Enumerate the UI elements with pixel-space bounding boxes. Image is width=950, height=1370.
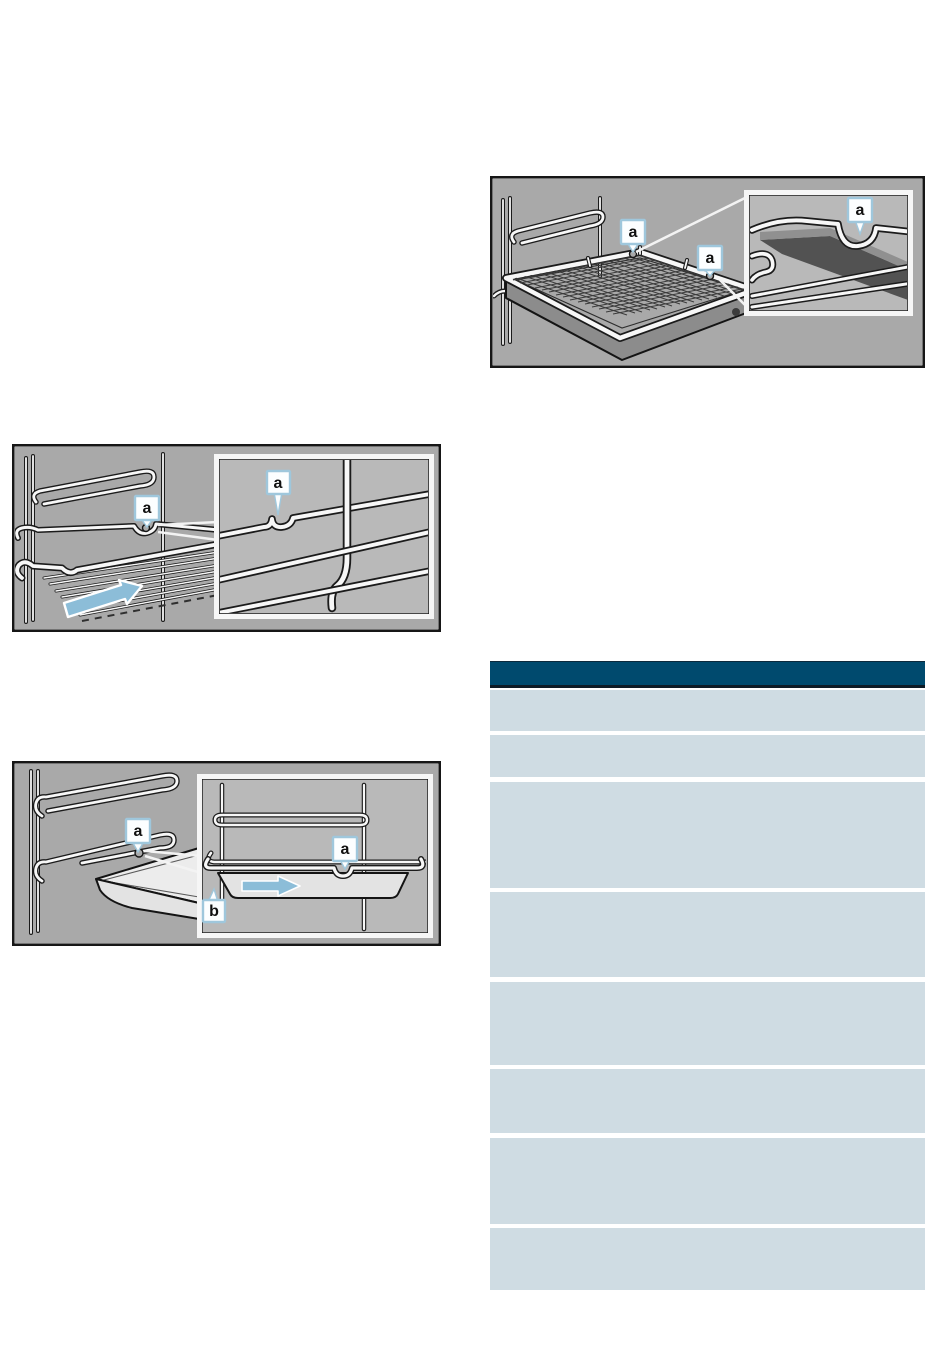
- detail-inset: a: [217, 457, 432, 617]
- table-header: [490, 661, 925, 688]
- svg-text:a: a: [341, 841, 350, 858]
- figure-rack-insertion: a a: [12, 444, 441, 632]
- table-row: [490, 690, 925, 731]
- svg-text:a: a: [706, 250, 715, 267]
- svg-text:a: a: [134, 823, 143, 840]
- svg-text:a: a: [274, 475, 283, 492]
- pan-corner-knob: [732, 308, 740, 316]
- table-row: [490, 892, 925, 977]
- page: { "page": { "width": 950, "height": 1370…: [0, 0, 950, 1370]
- table-row: [490, 1228, 925, 1290]
- svg-text:a: a: [143, 500, 152, 517]
- table-row: [490, 782, 925, 888]
- svg-text:b: b: [209, 903, 219, 920]
- svg-text:a: a: [629, 224, 638, 241]
- svg-text:a: a: [856, 202, 865, 219]
- table-row: [490, 1138, 925, 1224]
- detail-inset: a: [747, 193, 914, 314]
- figure-tray-insertion: a b a: [12, 761, 441, 946]
- table-row: [490, 1069, 925, 1133]
- table-row: [490, 735, 925, 777]
- detail-inset: a b: [200, 777, 431, 936]
- figure-pan-with-rack: a a a: [490, 176, 925, 368]
- settings-table: [490, 661, 925, 1290]
- table-row: [490, 982, 925, 1065]
